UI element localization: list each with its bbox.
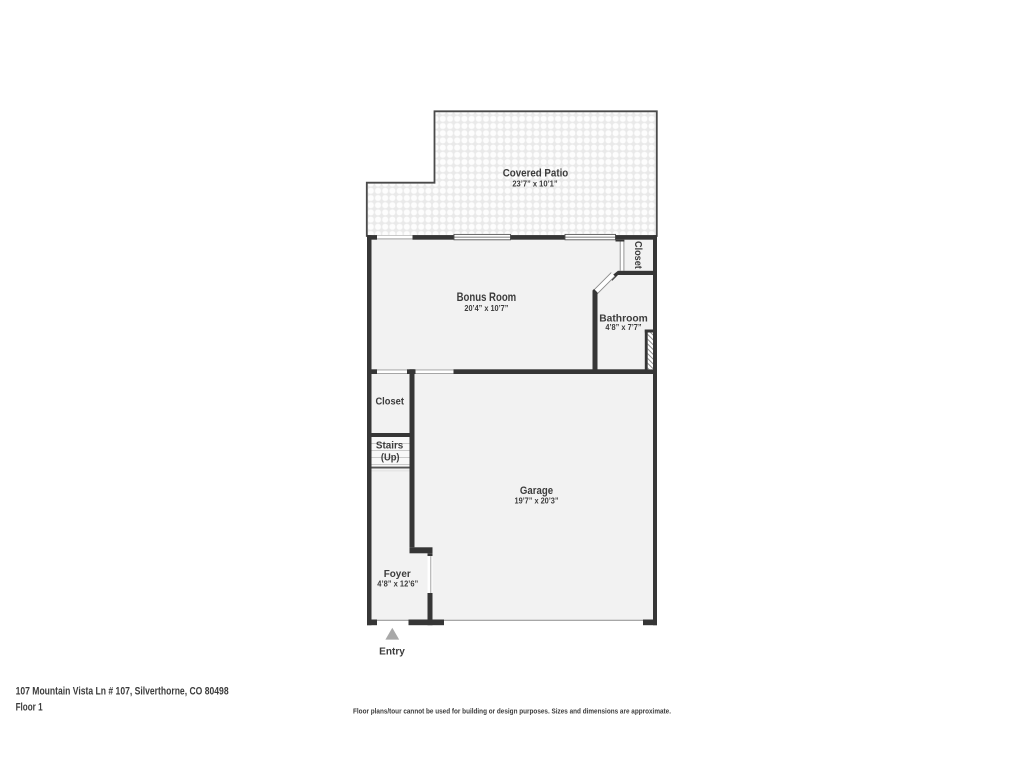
- svg-text:107 Mountain Vista Ln # 107, S: 107 Mountain Vista Ln # 107, Silverthorn…: [16, 686, 229, 698]
- svg-text:(Up): (Up): [381, 453, 400, 464]
- svg-text:20’4” x 10’7”: 20’4” x 10’7”: [464, 304, 508, 313]
- svg-text:Floor 1: Floor 1: [16, 702, 43, 714]
- svg-text:Floor plans/tour cannot be use: Floor plans/tour cannot be used for buil…: [353, 706, 671, 715]
- svg-text:23’7” x 10’1”: 23’7” x 10’1”: [512, 180, 557, 189]
- svg-text:19’7” x 20’3”: 19’7” x 20’3”: [515, 496, 559, 505]
- svg-text:Garage: Garage: [520, 485, 553, 497]
- svg-text:4’8” x 7’7”: 4’8” x 7’7”: [605, 323, 641, 332]
- svg-text:Closet: Closet: [632, 241, 643, 269]
- svg-text:Covered Patio: Covered Patio: [503, 168, 569, 180]
- svg-text:4’8” x 12’6”: 4’8” x 12’6”: [377, 580, 418, 589]
- svg-text:Entry: Entry: [379, 645, 405, 657]
- svg-text:Closet: Closet: [375, 397, 404, 408]
- svg-text:Stairs: Stairs: [376, 440, 404, 451]
- svg-text:Foyer: Foyer: [384, 568, 411, 580]
- svg-text:Bonus Room: Bonus Room: [457, 292, 517, 304]
